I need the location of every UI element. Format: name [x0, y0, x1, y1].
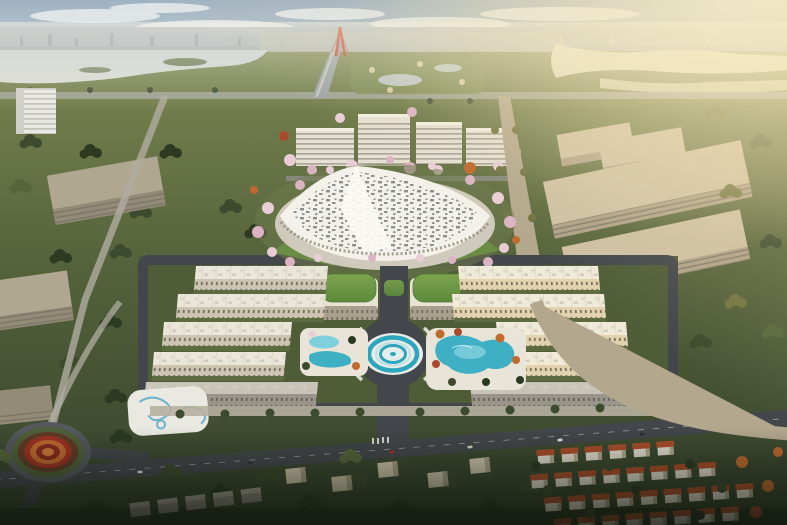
- aerial-render-image: Golden-hour aerial rendering of a master…: [0, 0, 787, 525]
- bottom-vignette: [0, 428, 787, 525]
- scene-canvas: [0, 0, 787, 525]
